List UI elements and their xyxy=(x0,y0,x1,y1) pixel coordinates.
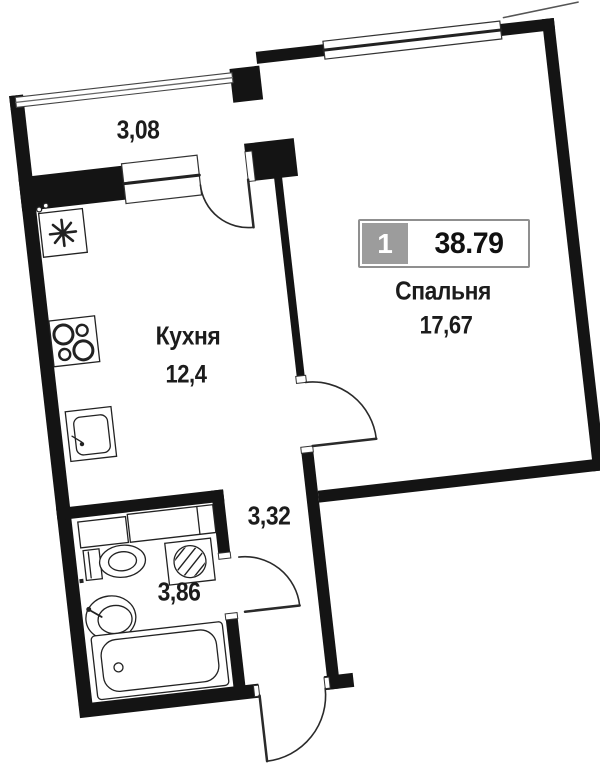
unit-info-badge: 1 38.79 xyxy=(358,219,530,268)
kitchen-name-label: Кухня xyxy=(156,321,221,352)
kitchen-window xyxy=(122,155,202,203)
ventilation-icon xyxy=(36,199,87,257)
toilet-icon xyxy=(76,543,147,583)
wall-end-caps xyxy=(173,148,341,699)
room-count-badge: 1 xyxy=(362,223,408,264)
bedroom-name-label: Спальня xyxy=(395,276,491,307)
balcony-door xyxy=(200,180,253,233)
bedroom-window xyxy=(323,21,502,59)
total-area-value: 38.79 xyxy=(413,221,525,266)
floor-plan-page: 3,08 1 38.79 Спальня 17,67 Кухня 12,4 3,… xyxy=(0,0,600,768)
kitchen-area-label: 12,4 xyxy=(165,361,206,390)
stove-icon xyxy=(49,316,100,367)
neighbor-glazing-line xyxy=(503,2,579,18)
balcony-glazing xyxy=(9,71,233,110)
bathroom-door xyxy=(239,551,300,612)
kitchen-sink-icon xyxy=(65,407,116,462)
bedroom-area-label: 17,67 xyxy=(420,312,473,341)
hallway-area-label: 3,32 xyxy=(248,501,291,532)
floor-plan-drawing xyxy=(0,0,600,768)
bedroom-door xyxy=(305,375,376,446)
balcony-area-label: 3,08 xyxy=(117,115,160,146)
entrance-door xyxy=(260,688,333,761)
bathroom-area-label: 3,86 xyxy=(158,577,201,608)
